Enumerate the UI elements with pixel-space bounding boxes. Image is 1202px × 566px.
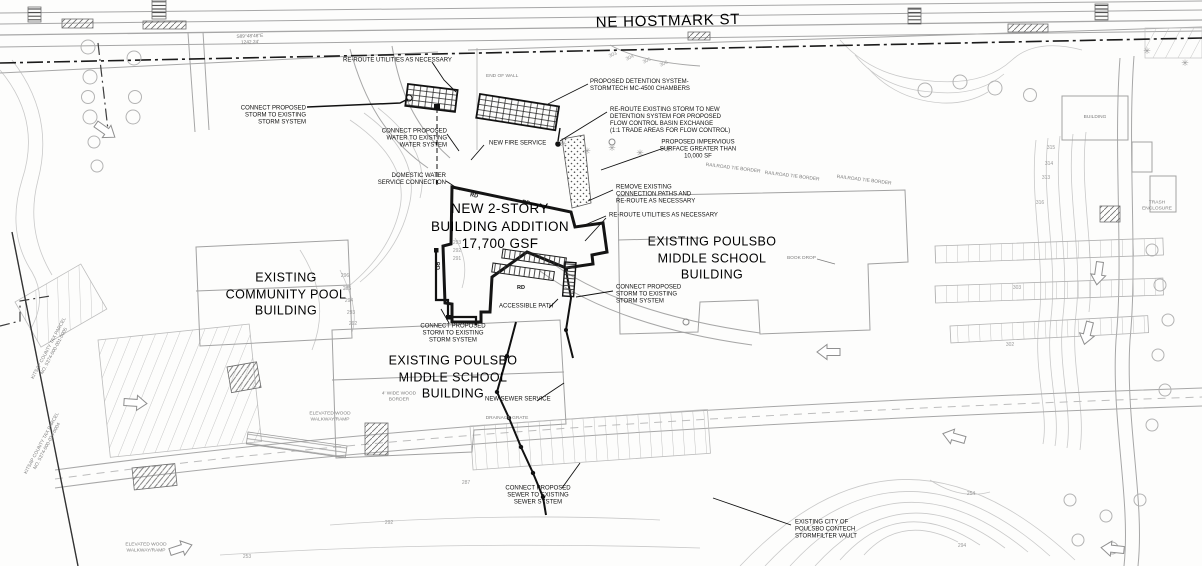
detention-chambers [405, 84, 560, 147]
shrub-symbols: ✳✳✳ ✳✳ ✳✳ [559, 47, 1189, 159]
svg-text:✳: ✳ [583, 147, 591, 157]
svg-text:✳: ✳ [1181, 59, 1189, 69]
svg-text:✳: ✳ [559, 140, 567, 150]
property-boundaries [0, 38, 1202, 566]
svg-text:✳: ✳ [636, 149, 644, 159]
svg-text:✳: ✳ [1143, 47, 1151, 57]
svg-text:✳: ✳ [608, 144, 616, 154]
plan-linework: ✳✳✳ ✳✳ ✳✳ [0, 0, 1202, 566]
new-building-outline [443, 135, 607, 322]
site-plan-drawing: ✳✳✳ ✳✳ ✳✳ NE HOSTMARK ST S89°48'48"E 124… [0, 0, 1202, 566]
svg-text:✳: ✳ [664, 145, 672, 155]
